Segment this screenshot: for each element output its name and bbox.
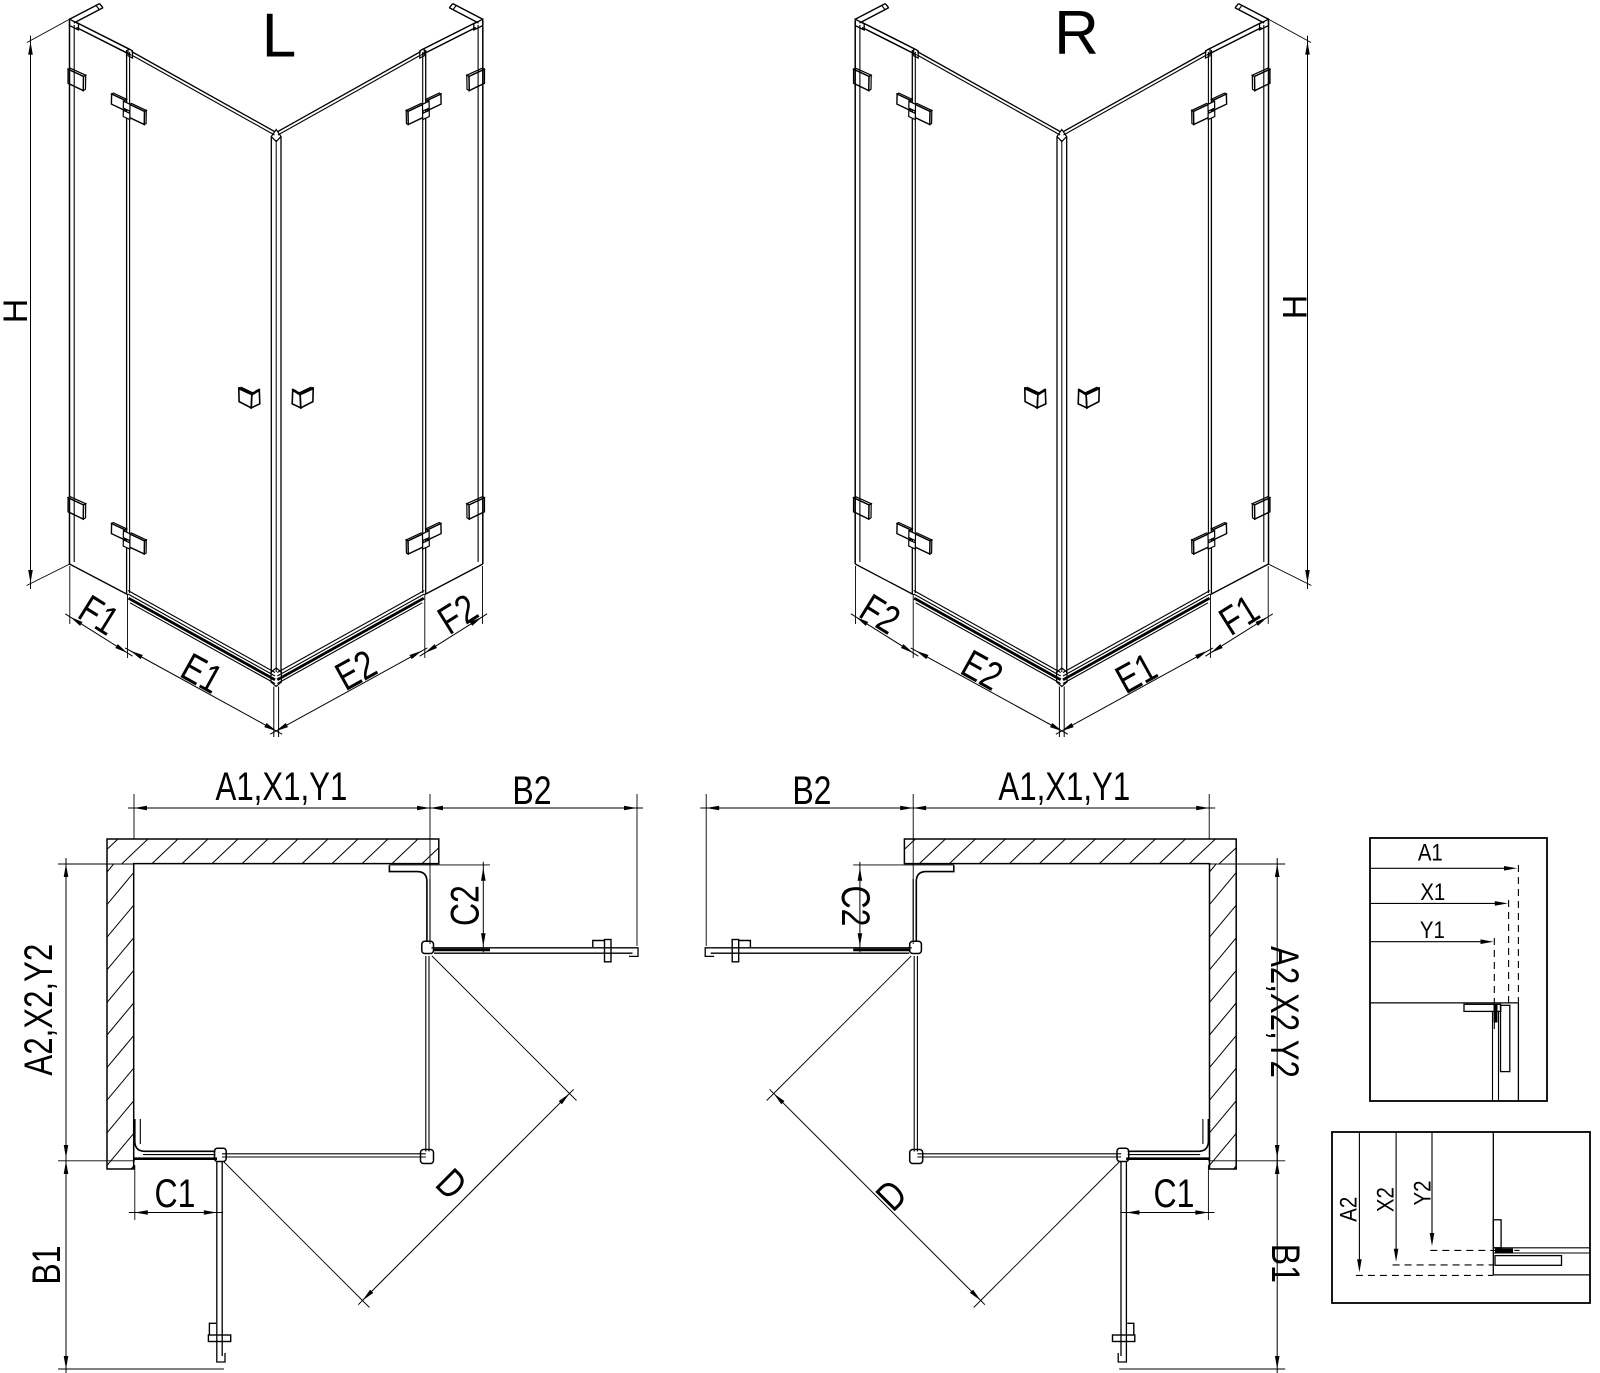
svg-text:A2,X2,Y2: A2,X2,Y2 (16, 944, 61, 1076)
svg-text:H: H (1277, 295, 1315, 320)
svg-text:C1: C1 (155, 1171, 196, 1216)
svg-text:A1: A1 (1418, 839, 1443, 866)
svg-text:Y1: Y1 (1420, 916, 1445, 943)
svg-text:Y2: Y2 (1409, 1181, 1436, 1206)
svg-text:R: R (1054, 0, 1099, 68)
svg-text:L: L (262, 2, 296, 71)
svg-text:B1: B1 (1263, 1244, 1308, 1283)
svg-text:A2: A2 (1335, 1197, 1362, 1222)
svg-text:A1,X1,Y1: A1,X1,Y1 (216, 764, 348, 809)
svg-text:X1: X1 (1420, 878, 1445, 905)
svg-text:C1: C1 (1154, 1171, 1195, 1216)
svg-text:H: H (0, 299, 35, 324)
svg-text:C2: C2 (442, 885, 487, 926)
svg-text:A1,X1,Y1: A1,X1,Y1 (998, 764, 1130, 809)
svg-text:X2: X2 (1372, 1187, 1399, 1212)
svg-text:B2: B2 (792, 768, 831, 813)
svg-text:B2: B2 (512, 768, 551, 813)
svg-text:B1: B1 (24, 1245, 69, 1284)
svg-text:C2: C2 (833, 886, 878, 927)
svg-text:A2,X2,Y2: A2,X2,Y2 (1262, 946, 1307, 1078)
